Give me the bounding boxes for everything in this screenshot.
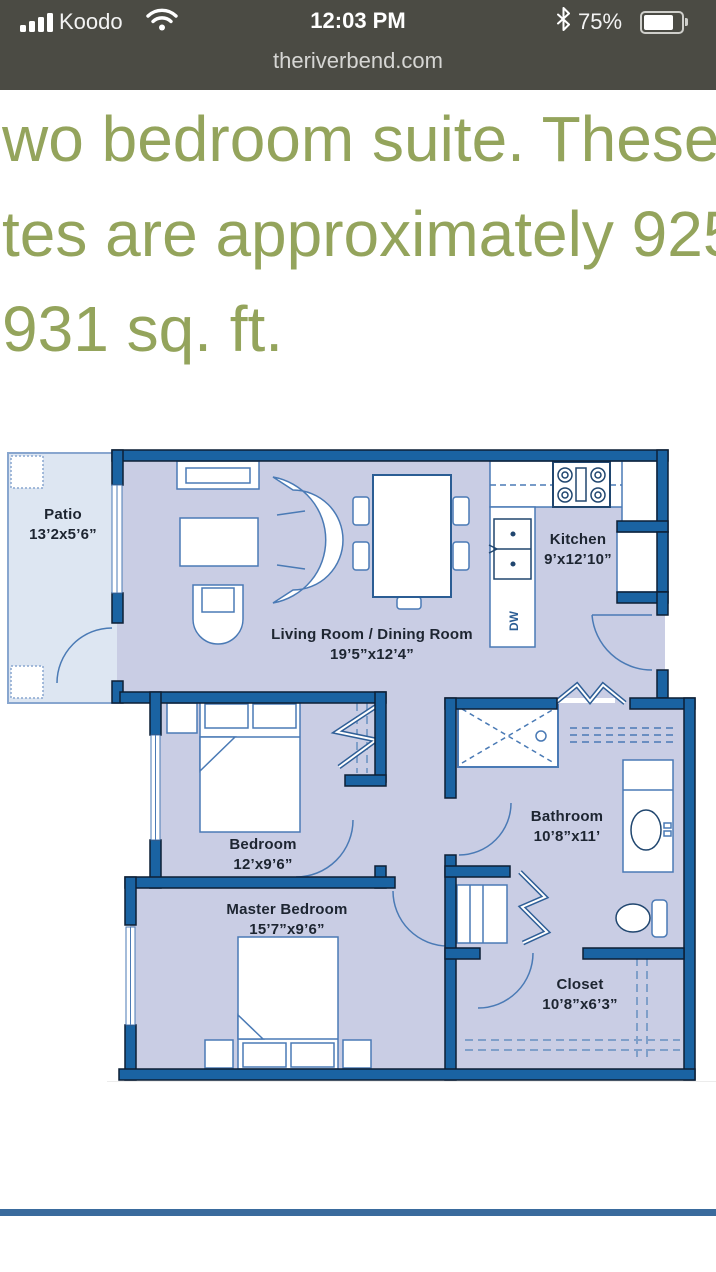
stove: [553, 462, 610, 507]
dishwasher-label: DW: [507, 610, 521, 631]
master-bed: [238, 937, 338, 1069]
bedroom-window: [151, 735, 160, 840]
floorplan-image: DW Patio13’2x5’6” Living Room / Dining R…: [5, 445, 701, 1087]
description-line-2: tes are approximately 925: [2, 187, 716, 282]
nightstand: [343, 1040, 371, 1068]
url-bar[interactable]: theriverbend.com: [0, 44, 716, 90]
image-bottom-edge: [107, 1081, 716, 1082]
master-window: [126, 927, 135, 1025]
browser-chrome: Koodo 12:03 PM 75% theriverbend.com: [0, 0, 716, 90]
bedroom-bed: [200, 700, 300, 832]
section-divider: [0, 1209, 716, 1216]
living-room-label: Living Room / Dining Room19’5”x12’4”: [252, 625, 492, 665]
tv-console: [177, 461, 259, 489]
armchair: [193, 585, 243, 644]
nightstand: [205, 1040, 233, 1068]
patio-label: Patio13’2x5’6”: [5, 505, 121, 545]
bedroom-label: Bedroom12’x9’6”: [193, 835, 333, 875]
shower: [458, 705, 558, 767]
dining-table: [373, 475, 451, 597]
page-description: wo bedroom suite. These tes are approxim…: [0, 92, 716, 392]
patio-corner-post: [11, 456, 43, 488]
url-text[interactable]: theriverbend.com: [273, 48, 443, 74]
bluetooth-icon: [556, 7, 571, 36]
description-line-1: wo bedroom suite. These: [2, 92, 716, 187]
kitchen-label: Kitchen9’x12’10”: [518, 530, 638, 570]
storage-unit: [457, 885, 507, 943]
battery-icon: [640, 11, 684, 34]
bathroom-label: Bathroom10’8”x11’: [497, 807, 637, 847]
battery-percent-label: 75%: [578, 9, 622, 35]
patio-corner-post: [11, 666, 43, 698]
description-line-3: 931 sq. ft.: [2, 282, 716, 377]
closet-label: Closet10’8”x6’3”: [510, 975, 650, 1015]
nightstand: [167, 703, 197, 733]
status-bar: Koodo 12:03 PM 75%: [0, 0, 716, 44]
master-bedroom-label: Master Bedroom15’7”x9’6”: [187, 900, 387, 940]
coffee-table: [180, 518, 258, 566]
